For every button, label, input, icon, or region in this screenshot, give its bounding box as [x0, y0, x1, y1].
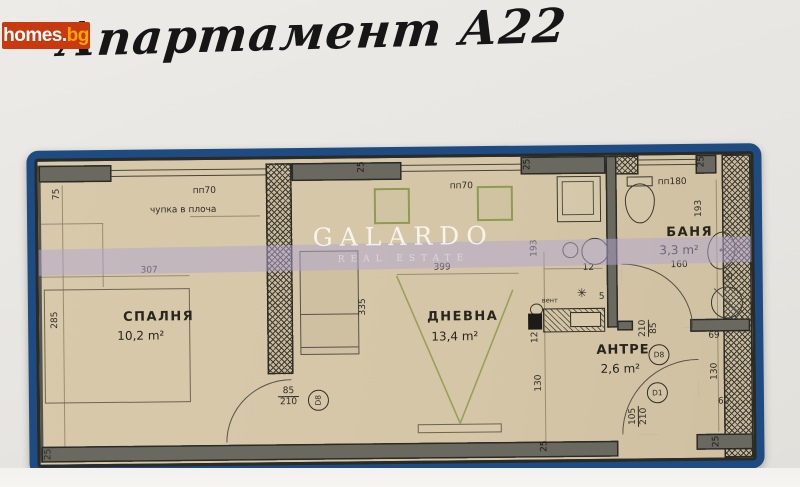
bath-name: БАНЯ — [666, 225, 713, 240]
bath-door-h: 210 — [638, 320, 648, 337]
bath-door-size: 210 85 — [638, 319, 660, 336]
bedroom-upper-vline — [102, 223, 104, 287]
living-furniture-line2 — [301, 346, 358, 348]
bedroom-window — [112, 168, 266, 177]
vent-shaft-block — [543, 308, 605, 333]
entry-door-id: D1 — [652, 388, 663, 397]
shower-symbol — [711, 286, 743, 318]
bedroom-door-tag: D8 — [308, 390, 329, 411]
dim-193-bath: 193 — [695, 200, 704, 217]
entry-door-h: 210 — [638, 406, 650, 427]
photo-paper-edge — [0, 468, 800, 487]
toilet-bowl — [625, 183, 655, 223]
note-vent: вент — [542, 297, 558, 304]
hall-name: АНТРЕ — [596, 342, 649, 358]
entry-door-size: 105 210 — [628, 406, 650, 427]
wall-bottom-right — [696, 433, 753, 450]
roof-window-1 — [374, 188, 410, 224]
bedroom-door-w: 85 — [283, 386, 295, 396]
note-pp180: пп180 — [658, 178, 687, 187]
bedroom-door-size: 85 210 — [278, 386, 299, 408]
bedroom-upper-line — [39, 223, 103, 225]
homes-bg-logo: homes.bg — [2, 22, 90, 49]
wall-top-mid — [291, 162, 401, 181]
kitchen-sink — [557, 176, 601, 222]
dim-307: 307 — [141, 266, 158, 275]
dim-25-bottom-left: 25 — [44, 449, 53, 461]
note-pp70-bedroom: пп70 — [193, 187, 216, 196]
roof-window-2 — [477, 186, 513, 221]
logo-text-suffix: bg — [67, 25, 89, 47]
dim-12-kitchen: 12 — [583, 264, 595, 273]
dim-25-wall-topright: 25 — [697, 156, 706, 168]
bedroom-name: СПАЛНЯ — [123, 309, 194, 325]
living-window-top — [401, 164, 520, 172]
dim-line-slab-note — [190, 215, 260, 217]
floorplan: СПАЛНЯ 10,2 m² ДНЕВНА 13,4 m² БАНЯ 3,3 m… — [34, 151, 756, 468]
entry-door-tag: D1 — [647, 382, 668, 403]
dim-25-wall-kitchen: 25 — [523, 159, 532, 171]
dim-line-living-width — [397, 273, 519, 275]
logo-text-primary: homes. — [3, 25, 67, 47]
note-slab: чупка в плоча — [150, 206, 217, 216]
living-name: ДНЕВНА — [427, 309, 498, 325]
watermark-name: GALARDO — [308, 221, 498, 252]
note-p: п — [727, 272, 733, 281]
dim-25-bottom-mid: 25 — [540, 440, 549, 452]
bedroom-door-id: D8 — [314, 395, 323, 406]
wall-bath-bottom — [690, 318, 750, 332]
vent-star-icon: ✳ — [577, 287, 587, 299]
column-bedroom-living — [265, 163, 293, 374]
bath-sink-drain — [719, 248, 722, 251]
living-furniture-line1 — [301, 313, 358, 315]
dim-60: 60 — [718, 398, 730, 407]
bath-door-id: D8 — [654, 350, 665, 359]
bedroom-area-outline — [44, 288, 191, 404]
dim-line-bedroom-width — [40, 275, 190, 278]
dim-25-wall-mid: 25 — [357, 161, 366, 173]
dim-line-hall-chain — [543, 251, 546, 443]
dim-130-right: 130 — [711, 363, 720, 380]
dim-193-kitchen: 193 — [530, 239, 539, 256]
entry-door-w: 105 — [628, 408, 638, 425]
stove-burner-large — [581, 238, 608, 265]
living-furniture — [299, 250, 359, 355]
dim-69: 69 — [708, 332, 720, 341]
floorplan-frame: СПАЛНЯ 10,2 m² ДНЕВНА 13,4 m² БАНЯ 3,3 m… — [26, 143, 764, 476]
stove-burner-small — [562, 242, 578, 258]
hall-area: 2,6 m² — [601, 361, 641, 375]
bedroom-area: 10,2 m² — [117, 328, 164, 342]
dim-160: 160 — [671, 261, 688, 270]
dim-335: 335 — [359, 298, 368, 315]
dim-130-hall: 130 — [535, 374, 544, 391]
wall-top-kitchen — [520, 156, 605, 175]
page-title: Апартамент А22 — [54, 0, 602, 86]
dim-25-bottom-right: 25 — [712, 436, 721, 448]
bath-door-tag: D8 — [648, 344, 669, 365]
bath-window — [638, 159, 695, 166]
dim-285: 285 — [51, 312, 60, 329]
dim-399: 399 — [434, 263, 451, 272]
bath-door-w: 85 — [648, 319, 660, 336]
dim-75: 75 — [53, 188, 62, 200]
bath-area: 3,3 m² — [659, 243, 699, 257]
bedroom-door-h: 210 — [278, 396, 299, 408]
note-pp70-living: пп70 — [450, 182, 473, 191]
dim-5: 5 — [599, 293, 605, 302]
vent-black-square — [528, 313, 542, 329]
shower-diagonal — [714, 288, 741, 314]
wall-left — [37, 166, 43, 463]
wall-bath-living — [605, 156, 618, 328]
wall-top-bedroom — [38, 165, 111, 183]
vent-inner-rect — [570, 312, 601, 327]
kitchen-sink-inner — [562, 181, 594, 215]
dim-12-hall: 12 — [531, 331, 540, 343]
wall-bottom — [41, 441, 618, 463]
living-area: 13,4 m² — [431, 329, 478, 343]
